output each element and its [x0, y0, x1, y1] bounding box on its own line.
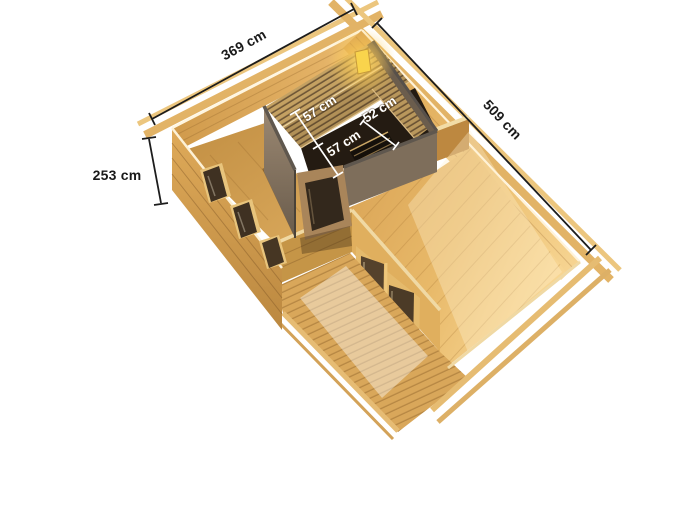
dim-label-height: 253 cm: [93, 167, 142, 183]
sauna-door: [297, 165, 352, 254]
product-image: 57 cm 52 cm 57 cm 369 cm 509 cm 253 cm: [0, 0, 700, 525]
cabin-illustration: 57 cm 52 cm 57 cm 369 cm 509 cm 253 cm: [0, 0, 700, 525]
dim-line-height: [149, 139, 161, 203]
dim-label-front-width: 369 cm: [218, 26, 268, 63]
sauna-lamp: [355, 49, 371, 74]
